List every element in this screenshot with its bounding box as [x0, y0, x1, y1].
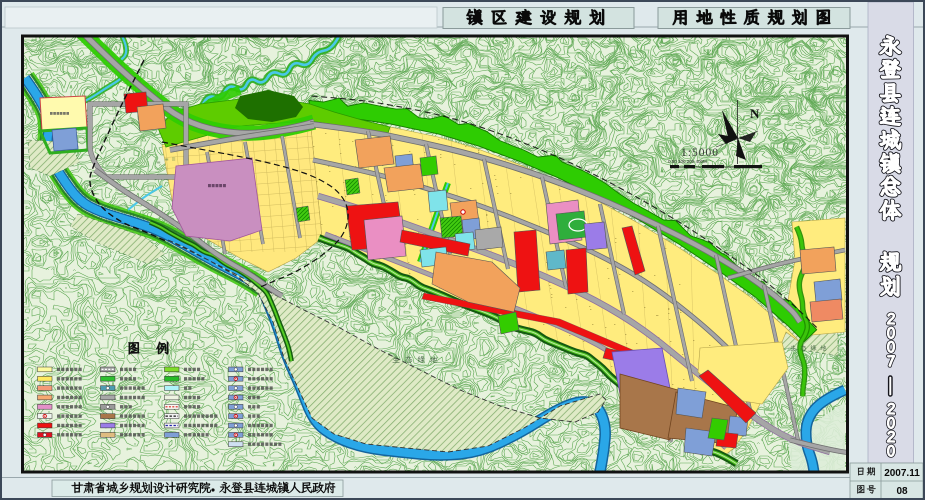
svg-text:0 50 100 200 400M: 0 50 100 200 400M	[668, 159, 707, 164]
svg-text:2007.11: 2007.11	[884, 468, 920, 479]
svg-text:08: 08	[896, 486, 908, 497]
svg-text:N: N	[750, 106, 760, 121]
svg-text:1:5000: 1:5000	[681, 147, 719, 159]
